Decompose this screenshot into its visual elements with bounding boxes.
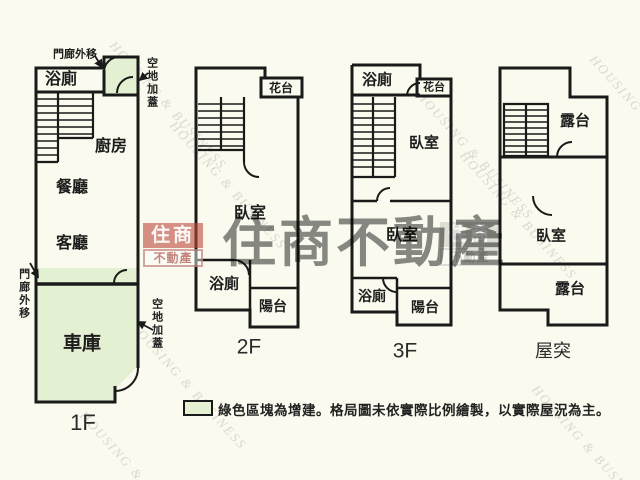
room-label-bath-lower-3f: 浴廁 [358, 289, 386, 303]
legend-note: 綠色區塊為增建。格局圖未依實際比例繪製，以實際屋況為主。 [218, 399, 610, 419]
floor-label-2f: 2F [237, 337, 262, 358]
room-label-bedroom-roof: 臥室 [536, 229, 566, 244]
floor-label-roof: 屋突 [535, 342, 571, 360]
room-label-living: 客廳 [56, 236, 88, 252]
annotation-porch-moved-left: 門廊外移 [16, 268, 29, 320]
floorplan-roof [500, 68, 607, 325]
brand-logo-top: 住商 [143, 223, 203, 248]
stairs-2f [198, 97, 244, 162]
annotation-porch-moved-top: 門廊外移 [53, 50, 97, 61]
door-arcs-roof [533, 142, 572, 215]
floor-label-3f: 3F [393, 341, 418, 362]
room-label-terrace-upper: 露台 [560, 114, 590, 129]
brand-logo-bottom: 不動產 [143, 249, 203, 267]
room-label-garage: 車庫 [63, 335, 101, 354]
walls-roof [500, 68, 607, 325]
legend-green-swatch [183, 400, 213, 416]
room-label-flowerbed-2f: 花台 [269, 82, 293, 94]
room-label-kitchen: 廚房 [95, 139, 127, 155]
stairs-3f [352, 97, 395, 177]
room-label-bath-upper-3f: 浴廁 [362, 73, 392, 88]
stairs-roof [504, 104, 548, 156]
room-label-bedroom-upper-3f: 臥室 [409, 136, 439, 151]
room-label-balcony-2f: 陽台 [259, 299, 287, 313]
room-label-terrace-lower: 露台 [555, 282, 585, 297]
room-label-balcony-3f: 陽台 [411, 300, 439, 314]
watermark-brand-text: 住商不動產 [222, 216, 507, 270]
room-label-bath-1f: 浴廁 [45, 72, 77, 88]
room-label-bath-2f: 浴廁 [209, 277, 239, 292]
stairs-1f [36, 92, 93, 162]
floor-label-1f: 1F [70, 412, 96, 434]
annotation-lot-covered-top: 空地加蓋 [144, 57, 157, 109]
room-label-flowerbed-3f: 花台 [423, 83, 445, 94]
brand-logo-stamp: 住商 不動產 [143, 223, 203, 267]
floorplan-3f [352, 65, 451, 325]
room-label-dining: 餐廳 [56, 180, 88, 196]
annotation-lot-covered-right: 空地加蓋 [149, 298, 162, 350]
floorplan-image: HOUSING & BUSINESS HOUSING & BUSINESS HO… [0, 0, 640, 480]
